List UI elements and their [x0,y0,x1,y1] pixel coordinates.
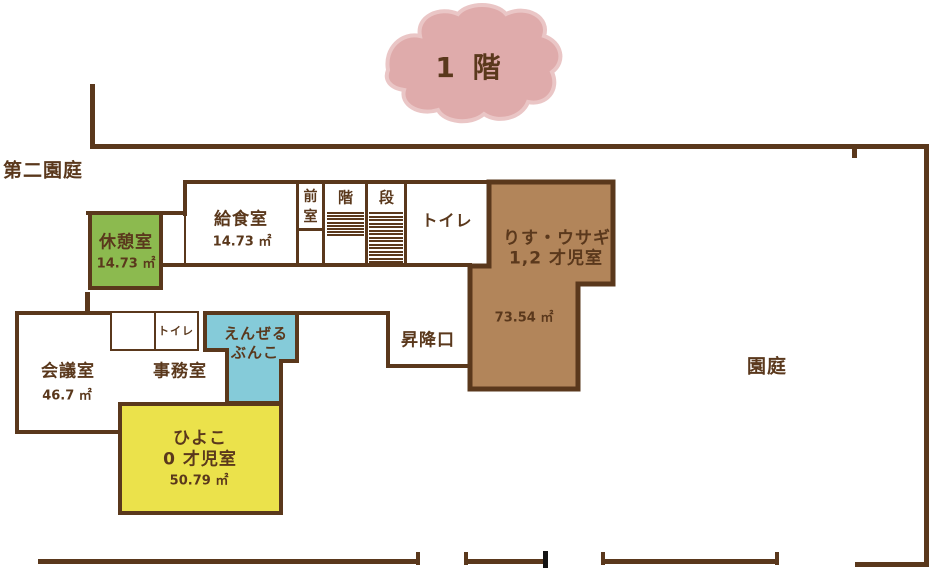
stair-tread [369,223,403,225]
stair-treads-left [327,212,364,238]
upper-block-left-thin-wall [184,213,186,265]
meeting-room-area: 46.7 ㎡ [42,390,92,403]
break-room-name: 休憩室 [99,235,153,252]
stair-tread [369,233,403,235]
kitchen-anteroom-divider [296,180,299,267]
stair-tread [369,251,403,253]
meeting-room-name: 会議室 [41,364,95,381]
stair-tread [369,261,403,263]
stair-tread [369,216,403,218]
hiyoko-name: ひよこ [173,431,227,448]
stair-tread [327,218,364,220]
dimension-line-1 [38,559,420,564]
stair-tread [369,212,403,214]
risu-usagi-area: 73.54 ㎡ [495,312,554,325]
risu-usagi-name2: 1,2 才児室 [509,251,603,268]
stair-tread [369,226,403,228]
stair-tread [369,219,403,221]
toilet-upper-label: トイレ [421,213,472,229]
site-boundary-top-tick [852,148,857,158]
upper-block-bottom-wall [162,263,472,267]
stair-tread [369,230,403,232]
second-garden-label: 第二園庭 [3,162,83,181]
kitchen-name: 給食室 [214,212,268,229]
stair-tread [327,234,364,236]
entrance-label: 昇降口 [401,333,455,350]
anteroom-char-top: 前 [304,190,319,204]
room-risu-usagi-shape [470,182,613,389]
dimension-line-3-tick-left [601,552,605,565]
site-boundary-bottom-corner [855,562,929,567]
entrance-left-wall [386,311,390,368]
angel-bunko-line1: えんぜる [224,327,288,342]
entrance-bottom-wall [386,364,469,368]
stairs-char-2: 段 [379,191,395,206]
dimension-line-3-tick-right [775,552,779,565]
stair-tread [327,231,364,233]
anteroom-char-bottom: 室 [304,210,319,224]
stair-tread [369,254,403,256]
hiyoko-name2: 0 才児室 [163,452,237,469]
stair-tread [327,212,364,214]
stair-tread [327,228,364,230]
angel-bunko-line2: ぶんこ [231,346,279,361]
meeting-block-left-wall [15,311,19,434]
stair-tread [369,237,403,239]
stairs-toilet-divider [404,180,407,267]
dimension-line-1-tick-right [416,552,420,565]
stair-tread [327,222,364,224]
garden-label: 園庭 [747,358,787,377]
floor-title: 1 階 [435,54,504,82]
hiyoko-area: 50.79 ㎡ [170,475,229,488]
stair-tread [327,225,364,227]
site-boundary-right-vertical [924,144,929,567]
break-room-area: 14.73 ㎡ [97,258,156,271]
dimension-line-3 [601,559,779,564]
toilet-lower-label: トイレ [158,326,194,337]
stair-tread [369,244,403,246]
site-boundary-left-vertical [90,84,95,148]
office-name: 事務室 [153,364,207,381]
stair-tread [369,240,403,242]
meeting-block-top-wall [15,311,112,315]
stair-tread [327,215,364,217]
dimension-line-2 [464,559,547,564]
site-boundary-top-horizontal [90,144,929,149]
stair-tread [369,247,403,249]
entrance-top-wall [297,311,390,315]
kitchen-area: 14.73 ㎡ [213,236,272,249]
stair-tread [369,258,403,260]
risu-usagi-name: りす・ウサギ [503,231,611,248]
stairs-middle-divider [365,180,368,267]
office-storage-box [110,311,156,351]
floor-plan: 1 階 第二園庭 園庭 昇降口 休憩室 14.73 ㎡ 給食室 14.73 ㎡ … [0,0,931,571]
dimension-line-2-tick-right-black [543,551,548,568]
dimension-line-2-tick-left [464,552,468,565]
anteroom-stairs-divider [322,180,325,267]
upper-block-top-wall [183,180,490,184]
anteroom-bottom-wall [296,228,325,231]
meeting-block-bottom-wall [15,430,122,434]
stairs-char-1: 階 [338,191,354,206]
stair-treads-right [369,212,403,266]
